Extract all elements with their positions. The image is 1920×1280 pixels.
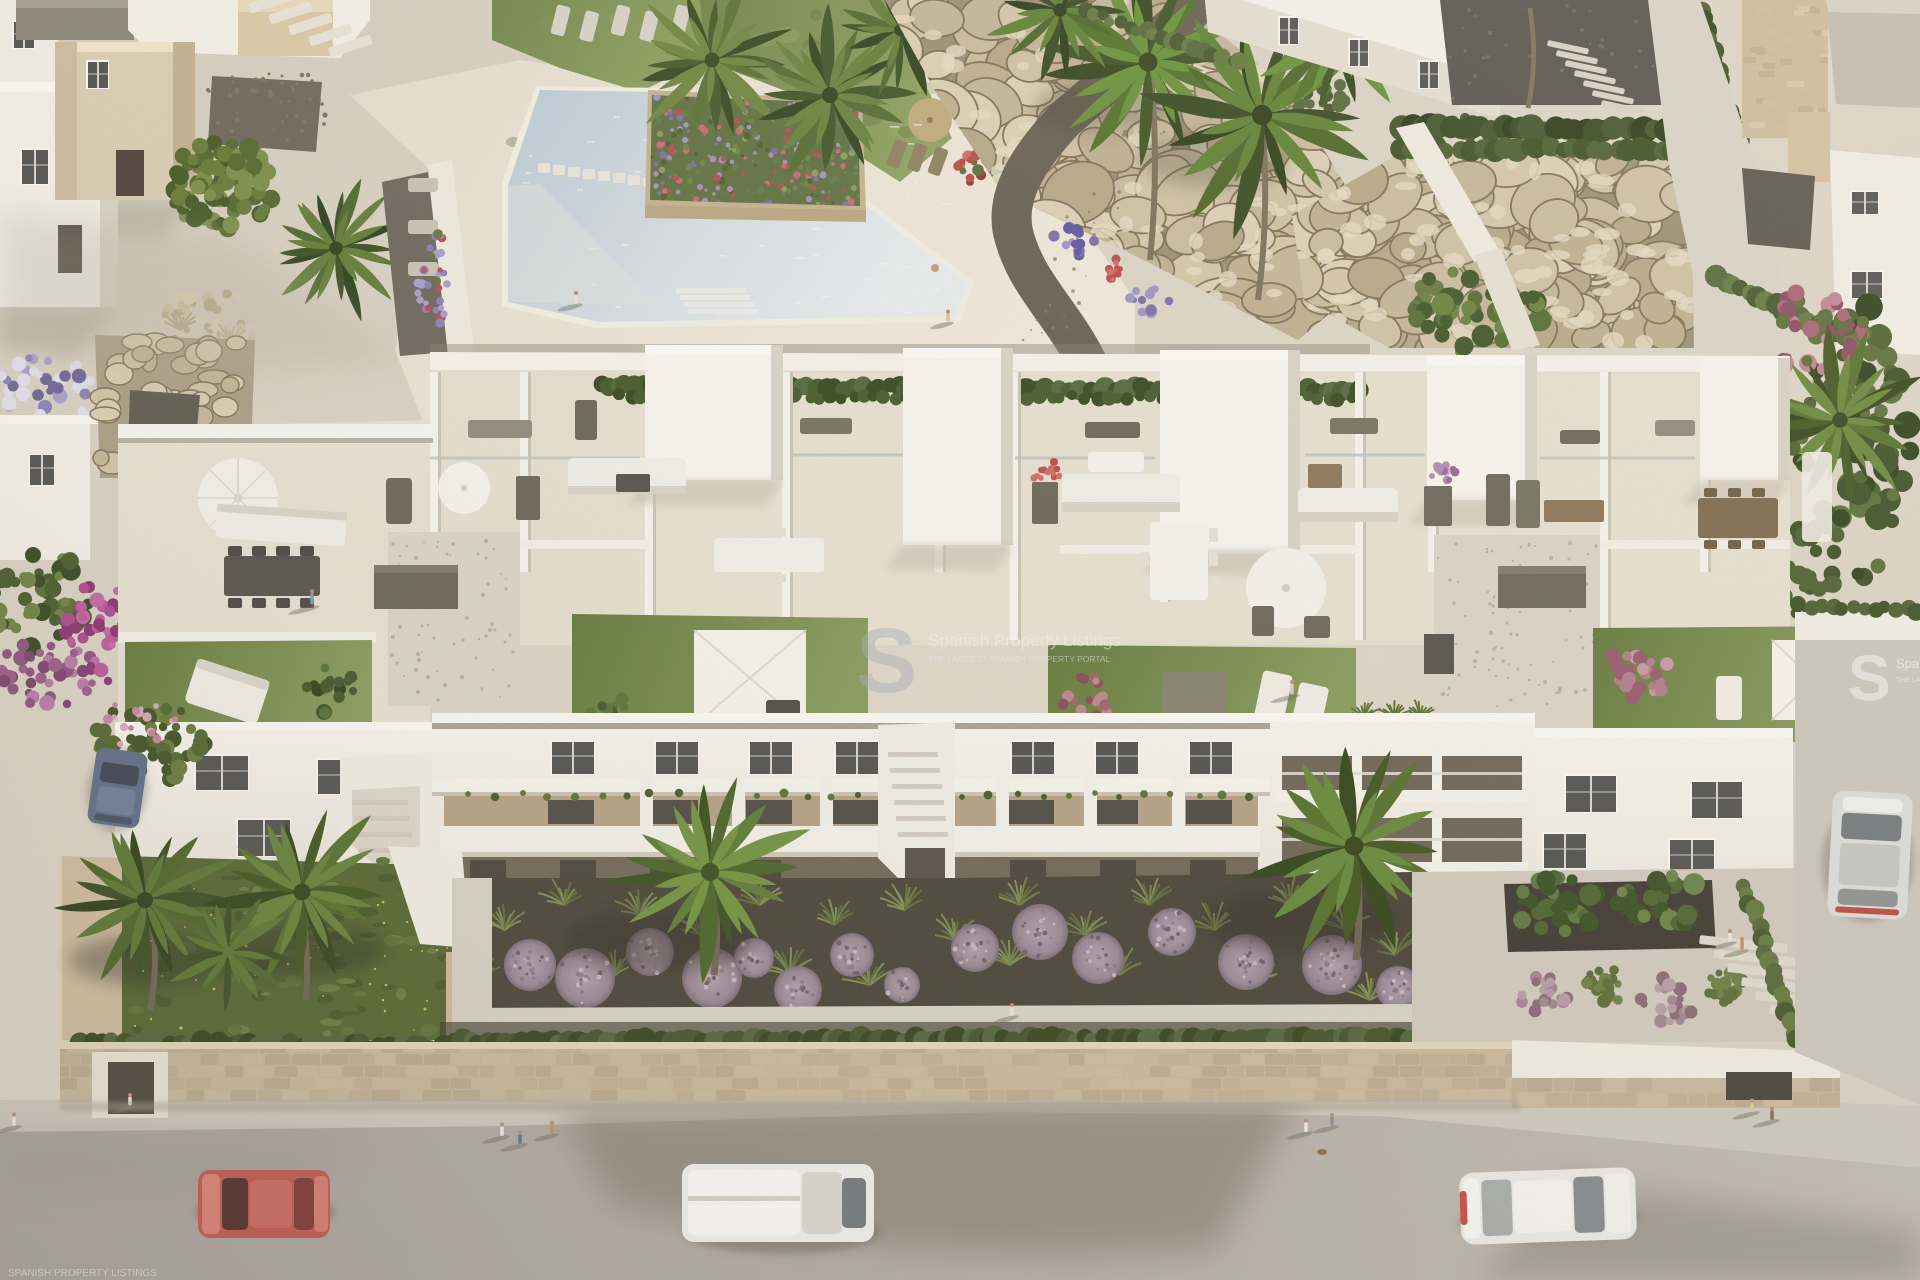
svg-text:Spanish: Spanish <box>1896 656 1920 671</box>
svg-text:SPANISH PROPERTY LISTINGS: SPANISH PROPERTY LISTINGS <box>8 1268 157 1279</box>
svg-text:S: S <box>856 610 917 712</box>
svg-text:S: S <box>1848 642 1891 714</box>
svg-text:Spanish Property Listings: Spanish Property Listings <box>928 631 1121 650</box>
svg-text:THE LARGEST SPANISH PROPERTY P: THE LARGEST SPANISH PROPERTY PORTAL <box>928 654 1111 664</box>
svg-text:THE LARGEST: THE LARGEST <box>1896 677 1920 684</box>
